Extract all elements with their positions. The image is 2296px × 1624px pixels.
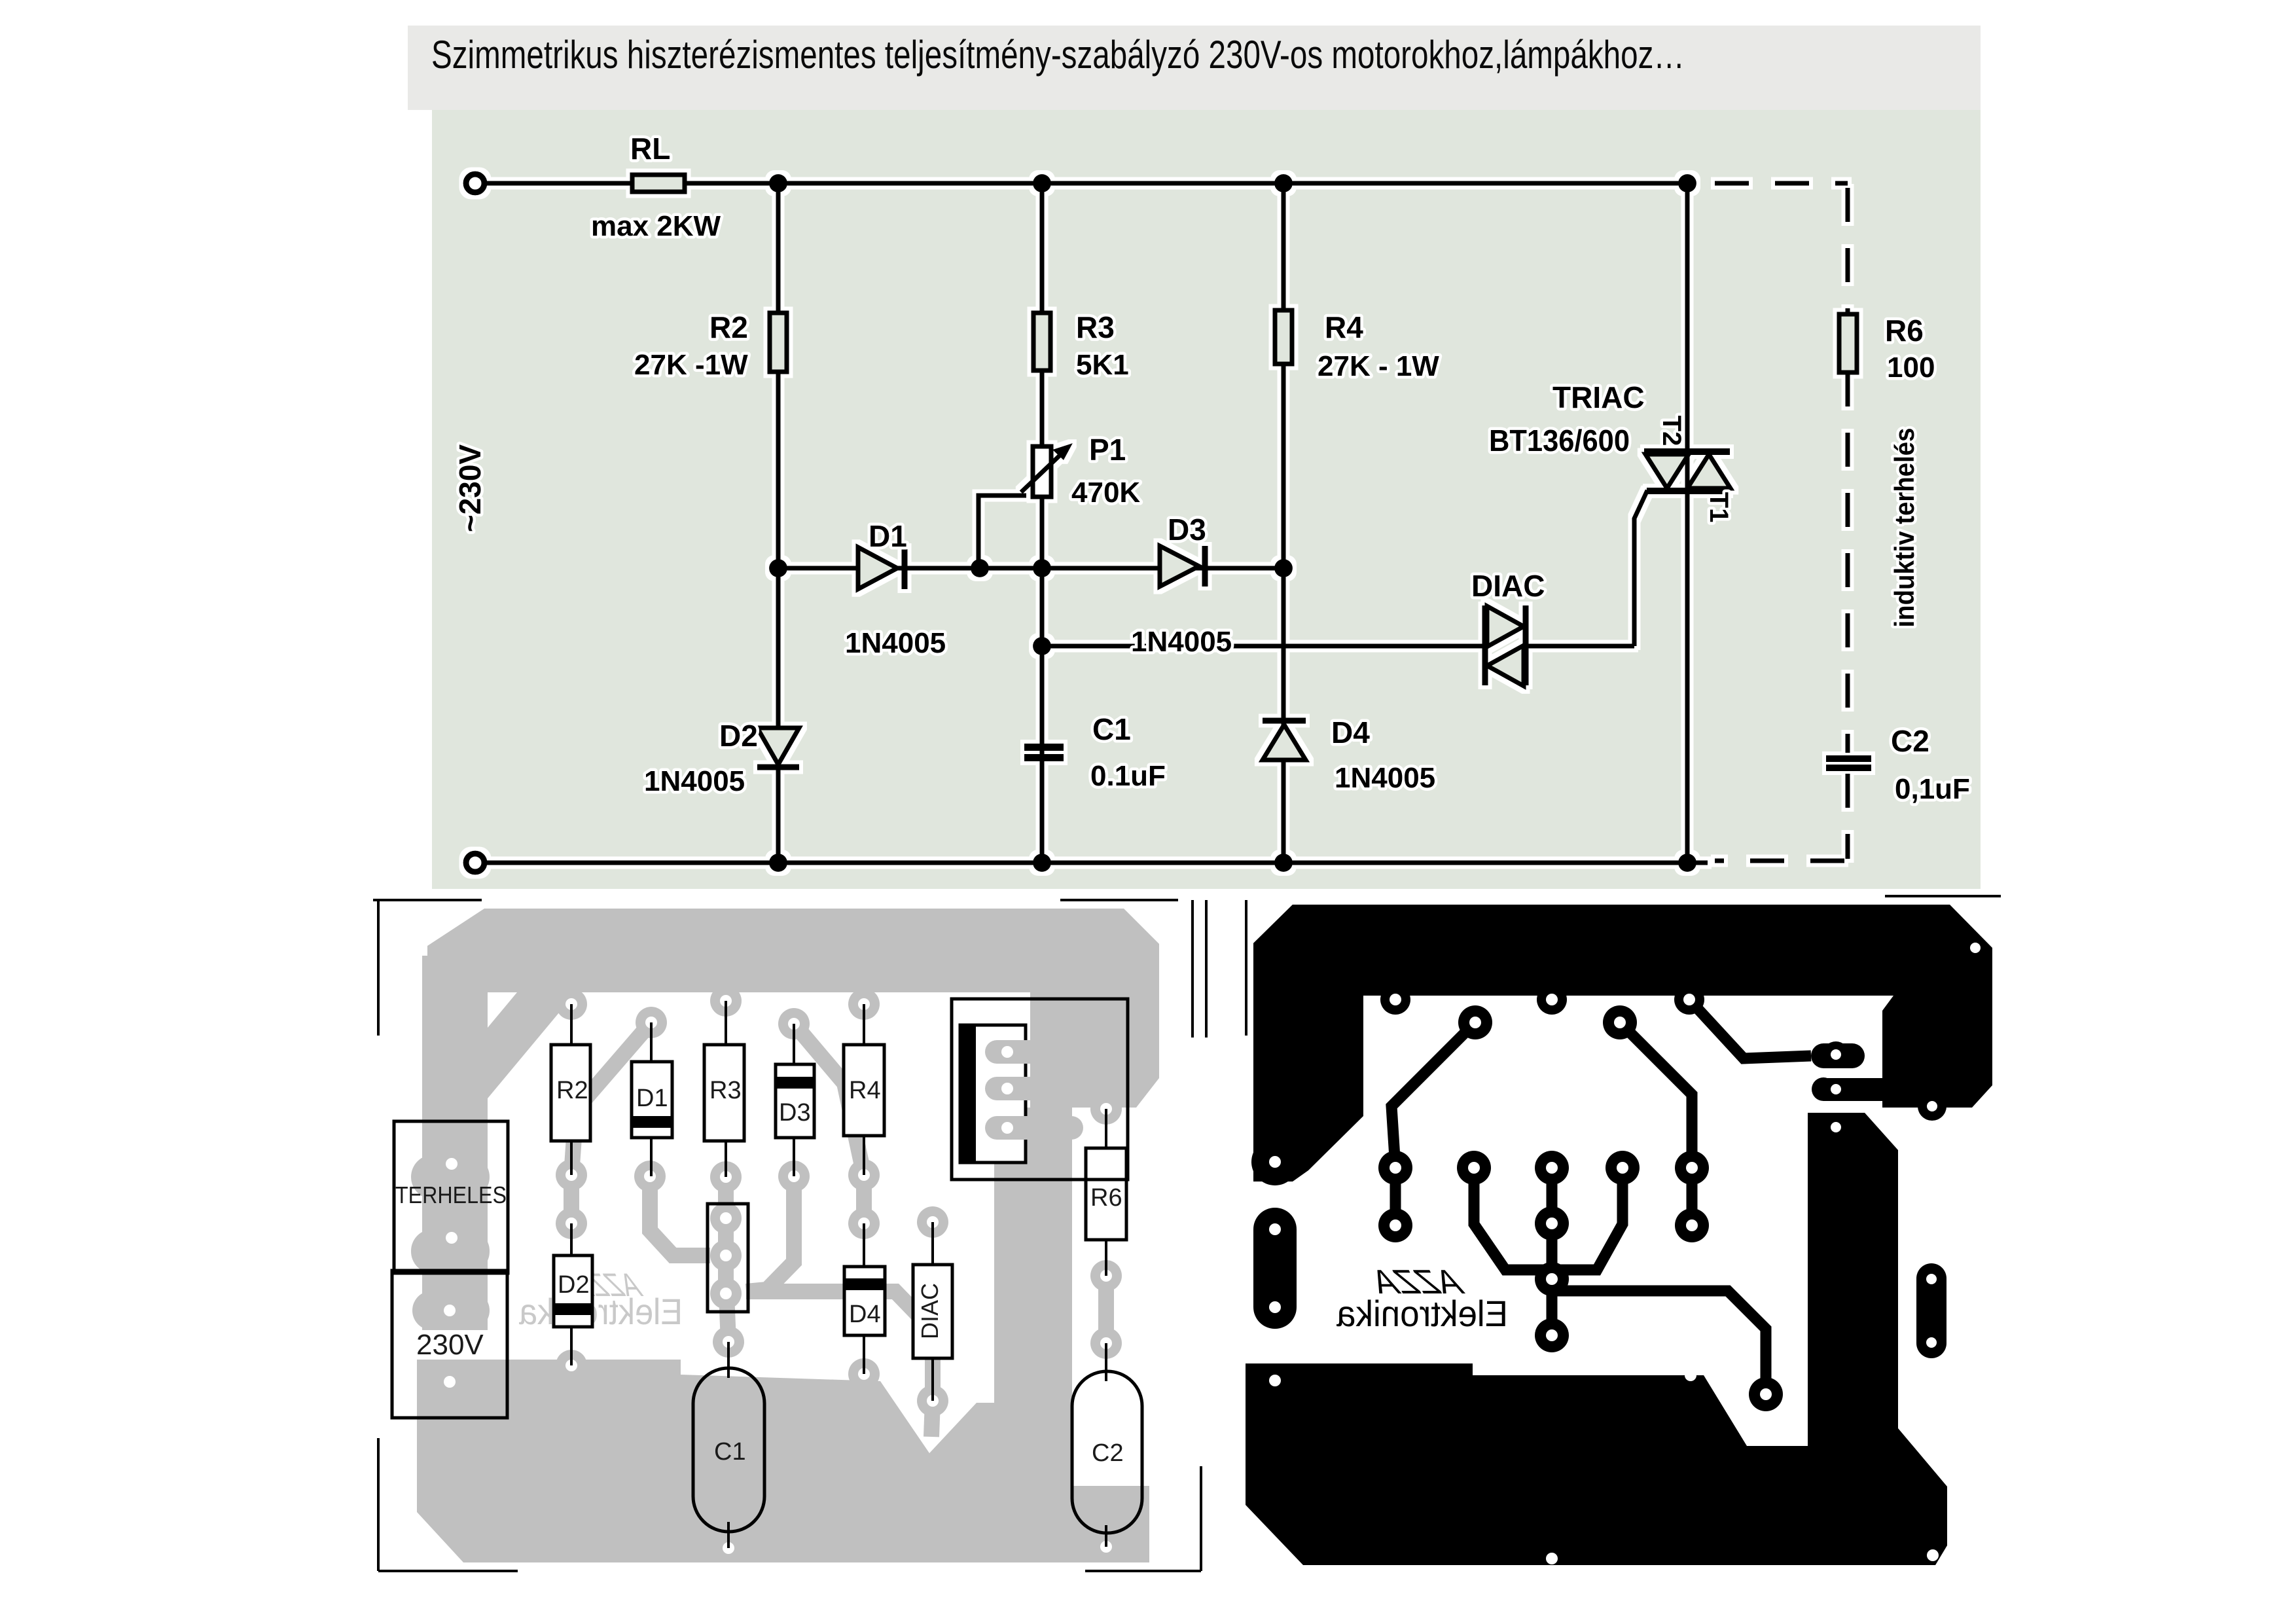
svg-text:Szimmetrikus hiszterézismentes: Szimmetrikus hiszterézismentes teljesítm…	[431, 33, 1685, 77]
svg-text:D2: D2	[558, 1271, 590, 1299]
svg-text:R4: R4	[849, 1077, 881, 1104]
svg-text:D2: D2	[719, 719, 758, 753]
svg-text:D4: D4	[849, 1301, 881, 1328]
svg-text:DIAC: DIAC	[1471, 569, 1545, 603]
svg-text:D1: D1	[869, 519, 907, 553]
svg-text:R6: R6	[1090, 1184, 1122, 1212]
svg-text:Elektronika: Elektronika	[518, 1291, 683, 1332]
svg-text:R3: R3	[1076, 310, 1115, 344]
svg-text:C1: C1	[714, 1438, 746, 1466]
svg-text:R3: R3	[709, 1077, 742, 1104]
svg-text:27K - 1W: 27K - 1W	[1318, 350, 1439, 382]
svg-text:TRIAC: TRIAC	[1552, 380, 1645, 414]
svg-text:1N4005: 1N4005	[1131, 626, 1232, 658]
svg-text:D4: D4	[1331, 715, 1370, 749]
svg-text:C1: C1	[1092, 712, 1131, 746]
svg-text:P1: P1	[1089, 433, 1126, 467]
svg-text:5K1: 5K1	[1076, 349, 1129, 381]
svg-text:TERHELES: TERHELES	[395, 1182, 507, 1208]
svg-text:Elektronika: Elektronika	[1336, 1293, 1508, 1334]
svg-text:RL: RL	[630, 132, 670, 166]
svg-text:1N4005: 1N4005	[845, 627, 946, 659]
svg-text:C2: C2	[1092, 1439, 1124, 1467]
svg-text:0.1uF: 0.1uF	[1090, 760, 1166, 792]
svg-text:R2: R2	[709, 310, 748, 344]
svg-text:T1: T1	[1704, 492, 1733, 523]
svg-text:R4: R4	[1325, 310, 1363, 344]
svg-text:BT136/600: BT136/600	[1489, 424, 1630, 458]
svg-text:27K -1W: 27K -1W	[634, 349, 748, 381]
svg-text:T2: T2	[1657, 416, 1686, 446]
svg-text:induktiv terhelés: induktiv terhelés	[1889, 428, 1920, 628]
svg-text:230V: 230V	[416, 1329, 484, 1361]
svg-text:R2: R2	[556, 1077, 588, 1104]
svg-text:D3: D3	[1168, 513, 1206, 547]
svg-text:D3: D3	[779, 1099, 811, 1127]
svg-text:R6: R6	[1885, 314, 1924, 348]
svg-text:max 2KW: max 2KW	[591, 210, 721, 242]
svg-text:D1: D1	[636, 1085, 668, 1112]
svg-text:C2: C2	[1891, 724, 1929, 758]
svg-text:0,1uF: 0,1uF	[1895, 773, 1970, 805]
svg-text:100: 100	[1887, 352, 1935, 384]
svg-text:DIAC: DIAC	[916, 1283, 943, 1339]
svg-text:1N4005: 1N4005	[1335, 762, 1435, 794]
svg-text:1N4005: 1N4005	[644, 765, 745, 797]
svg-text:470K: 470K	[1071, 477, 1140, 509]
svg-text:~230V: ~230V	[453, 444, 487, 533]
